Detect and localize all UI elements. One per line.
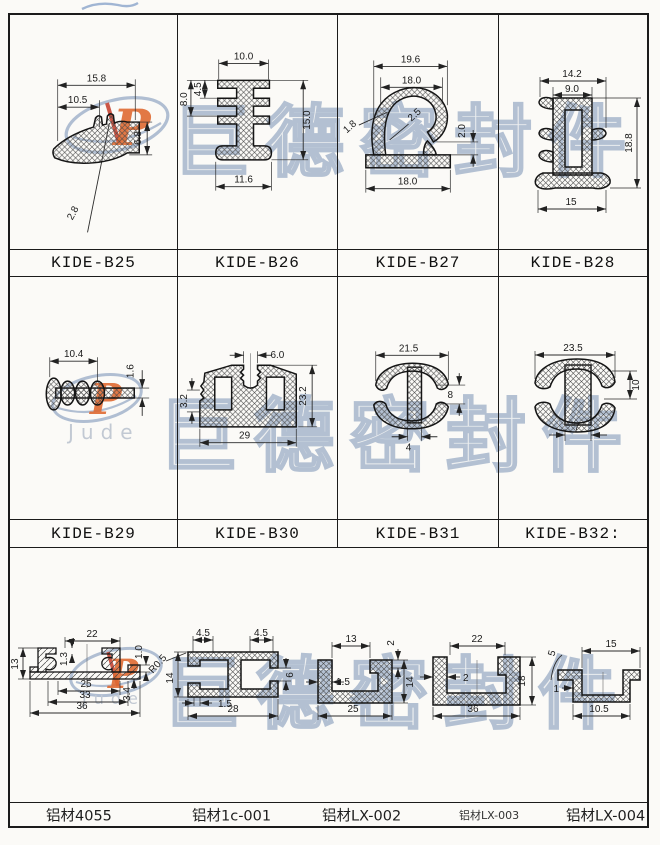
dim-label: 23.2 — [298, 386, 309, 406]
dim-label: 25 — [80, 679, 92, 690]
dim-label: 15 — [565, 197, 577, 208]
b30-profile-shape — [200, 365, 296, 427]
label-kide-b25: KIDE-B25 — [10, 249, 178, 277]
b28-profile-svg: 14.2 9.0 18.8 15 — [499, 15, 647, 249]
dim-label: 1 — [553, 684, 559, 695]
dim-label: 18.0 — [402, 75, 422, 86]
label-kide-b31-text: KIDE-B31 — [376, 525, 461, 543]
dim-label: 4.5 — [254, 628, 268, 639]
label-al-lx002: 铝材LX-002 — [322, 804, 401, 825]
dim-label: 3.4 — [122, 687, 133, 701]
dim-label: 23.5 — [563, 343, 583, 354]
dim-label: 8 — [448, 390, 454, 401]
cell-b28-drawing: 14.2 9.0 18.8 15 — [499, 15, 647, 249]
a4055-right-step — [128, 665, 140, 672]
dim-label: 1.6 — [125, 364, 136, 378]
label-kide-b26: KIDE-B26 — [178, 249, 338, 277]
b25-profile-shape — [53, 114, 139, 163]
label-kide-b29: KIDE-B29 — [10, 519, 178, 548]
cell-b31-drawing: 21.5 8 4 — [338, 277, 499, 519]
label-kide-b27-text: KIDE-B27 — [376, 254, 461, 272]
b27-profile-svg: 19.6 18.0 2.5 1.8 2.0 18.0 — [338, 15, 498, 249]
dim-label: 1.5 — [336, 677, 350, 688]
b26-profile-svg: 10.0 4.5 8.0 15.0 11.6 — [178, 15, 337, 249]
b30-profile-svg: 6.0 3.2 23.2 29 — [178, 277, 337, 519]
dim-label: 18.0 — [398, 177, 418, 188]
lx002-profile-shape — [318, 660, 392, 703]
label-al-lx004: 铝材LX-004 — [566, 804, 645, 825]
dim-label: 14 — [165, 672, 176, 684]
b28-fin-1 — [539, 98, 553, 109]
dim-label: 2.5 — [406, 106, 424, 124]
label-al-1c001: 铝材1c-001 — [192, 804, 271, 825]
cell-b26-drawing: 10.0 4.5 8.0 15.0 11.6 — [178, 15, 338, 249]
b29-lobe-2 — [76, 381, 90, 405]
dim-label: 33 — [79, 690, 91, 701]
dim-label: 15.0 — [302, 110, 313, 130]
dim-label: 4.5 — [196, 628, 210, 639]
dim-label: 1.0 — [134, 645, 145, 659]
cell-b29-drawing: 10.4 1.6 — [10, 277, 178, 519]
b28-profile-shape — [553, 98, 592, 175]
dim-label: 10.0 — [234, 51, 254, 62]
cell-b32-drawing: 23.5 10 7 — [499, 277, 647, 519]
lx003-profile-shape — [433, 657, 520, 705]
dim-label: 4 — [406, 443, 412, 454]
a4055-left-clip — [38, 648, 56, 672]
dim-label: 11.6 — [234, 175, 253, 186]
label-kide-b25-text: KIDE-B25 — [51, 254, 136, 272]
label-kide-b30-text: KIDE-B30 — [215, 525, 300, 543]
b28-fin-2 — [539, 129, 553, 140]
b29-lobe-1 — [61, 381, 75, 405]
dim-label: 22 — [86, 629, 98, 640]
dim-label: 9.0 — [565, 84, 579, 95]
lx003-group: 22 2 18 36 — [420, 634, 536, 720]
dim-label: 25 — [347, 704, 359, 715]
b29-lobe-3 — [91, 381, 105, 405]
label-al-lx003: 铝材LX-003 — [459, 807, 519, 823]
dim-label: 19.6 — [401, 54, 421, 65]
b31-column-shape — [408, 367, 422, 423]
aluminum-profiles-svg: 22 13 1.3 25 33 36 1.0 3.4 — [10, 548, 647, 802]
dim-label: 2.0 — [457, 124, 468, 138]
cell-b30-drawing: 6.0 3.2 23.2 29 — [178, 277, 338, 519]
dim-label: 10 — [631, 379, 642, 391]
a4055-left-tab — [30, 667, 38, 672]
dim-label: 10.5 — [589, 704, 609, 715]
b27-base-shape — [366, 155, 450, 168]
label-kide-b28: KIDE-B28 — [499, 249, 647, 277]
b28-fin-right — [592, 129, 606, 140]
label-kide-b32: KIDE-B32: — [499, 519, 647, 548]
dim-label: 2 — [463, 673, 469, 684]
dim-label: 28 — [227, 704, 239, 715]
catalog-sheet: P 巨德密封件 P Jude 巨德密封件 P Jude 巨德密封件 — [0, 0, 660, 845]
b28-fin-3 — [539, 151, 553, 162]
label-al-4055: 铝材4055 — [46, 804, 112, 825]
a1c001-group: 4.5 4.5 R0.5 14 6 1.5 28 — [147, 628, 296, 720]
label-kide-b32-text: KIDE-B32: — [525, 525, 620, 543]
b29-head-shape — [46, 378, 61, 410]
cell-b27-drawing: 19.6 18.0 2.5 1.8 2.0 18.0 — [338, 15, 499, 249]
label-kide-b30: KIDE-B30 — [178, 519, 338, 548]
dim-label: 36 — [76, 701, 88, 712]
lx004-profile-shape — [558, 670, 640, 702]
b27-hook-shape — [423, 141, 436, 155]
dim-label: 2 — [386, 640, 397, 646]
label-kide-b26-text: KIDE-B26 — [215, 254, 300, 272]
dim-label: 13 — [10, 658, 21, 670]
dim-label: 10.4 — [64, 349, 84, 360]
dim-label: 4.5 — [193, 82, 204, 96]
dim-label: 8.0 — [179, 92, 190, 106]
dim-label: 15.8 — [87, 73, 107, 84]
lx004-group: 15 5 1 10.5 — [547, 639, 640, 720]
lx002-group: 13 2 1.5 14 25 — [306, 634, 416, 720]
scan-artifact-squiggle — [80, 0, 140, 12]
dim-label: 5 — [547, 649, 559, 658]
dim-label: 1.8 — [341, 118, 359, 136]
cell-b25-drawing: 15.8 10.5 6.8 2.8 — [10, 15, 178, 249]
cell-aluminum-drawings: 22 13 1.3 25 33 36 1.0 3.4 — [10, 548, 647, 802]
b26-profile-shape — [216, 80, 272, 160]
label-kide-b29-text: KIDE-B29 — [51, 525, 136, 543]
b32-profile-svg: 23.5 10 7 — [499, 277, 647, 519]
catalog-table: 15.8 10.5 6.8 2.8 — [8, 13, 649, 828]
dim-label: R0.5 — [147, 652, 170, 675]
dim-label: 6.0 — [270, 350, 284, 361]
b25-profile-svg: 15.8 10.5 6.8 2.8 — [10, 15, 177, 249]
dim-label: 13 — [345, 634, 357, 645]
b32-column-shape — [565, 365, 591, 425]
label-kide-b31: KIDE-B31 — [338, 519, 499, 548]
label-kide-b28-text: KIDE-B28 — [531, 254, 616, 272]
dim-label: 10.5 — [68, 95, 88, 106]
a1c001-profile-shape — [188, 652, 278, 697]
a4055-group: 22 13 1.3 25 33 36 1.0 3.4 — [10, 629, 150, 717]
a4055-right-clip — [102, 648, 120, 672]
dim-label: 21.5 — [399, 343, 419, 354]
b29-profile-svg: 10.4 1.6 — [10, 277, 177, 519]
b27-dimensions: 19.6 18.0 2.5 1.8 2.0 18.0 — [341, 54, 478, 192]
a4055-plate — [30, 672, 140, 679]
dim-label: 14 — [405, 676, 416, 688]
dim-label: 18.8 — [624, 133, 635, 153]
dim-label: 29 — [239, 431, 251, 442]
dim-label: 2.8 — [65, 204, 81, 222]
dim-label: 22 — [471, 634, 483, 645]
dim-label: 3.2 — [179, 394, 190, 408]
aluminum-label-band: 铝材4055 铝材1c-001 铝材LX-002 铝材LX-003 铝材LX-0… — [10, 802, 647, 826]
dim-label: 14.2 — [562, 69, 582, 80]
b31-profile-svg: 21.5 8 4 — [338, 277, 498, 519]
label-kide-b27: KIDE-B27 — [338, 249, 499, 277]
dim-label: 15 — [605, 639, 617, 650]
dim-label: 1.3 — [59, 652, 70, 666]
dim-label: 6 — [285, 672, 296, 678]
